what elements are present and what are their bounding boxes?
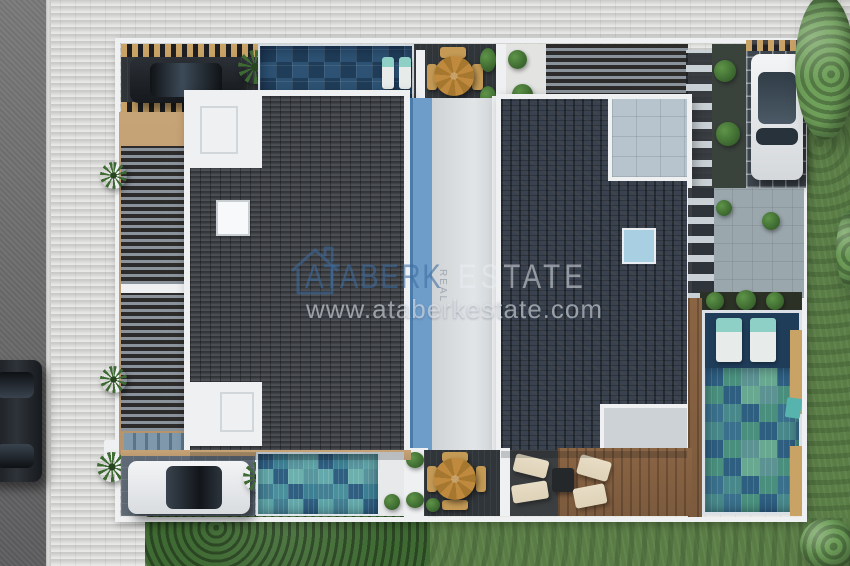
garden-shrub: [716, 200, 732, 216]
planter-shrub: [766, 292, 784, 310]
watermark-text-ataberk: ATABERK: [305, 260, 442, 294]
planter-shrub: [736, 290, 756, 310]
watermark-text-estate: ESTATE: [458, 260, 587, 294]
round-dining-table: [434, 56, 474, 96]
terrace-chair: [476, 466, 486, 492]
wall-pillar: [500, 448, 510, 516]
roof-shadow: [190, 452, 404, 460]
stepping-stone-column: [688, 188, 714, 300]
in-pool-lounger: [750, 318, 776, 362]
garden-shrub: [508, 50, 527, 69]
terrace-plant: [384, 494, 400, 510]
watermark-brand-secondary: ESTATE: [458, 260, 615, 294]
in-pool-lounger: [399, 57, 411, 89]
carport-trellis-beam: [121, 44, 259, 57]
pool-towel: [785, 397, 803, 419]
rooflight-frame: [220, 392, 254, 432]
skylight-left-roof: [216, 200, 250, 236]
deck-coffee-table: [552, 468, 574, 492]
garden-shrub: [762, 212, 780, 230]
round-dining-table: [434, 458, 476, 500]
terrace-divider: [121, 284, 189, 293]
palm-tree: [100, 366, 127, 393]
aerial-render-canvas: ATABERK REAL ESTATE www.ataberkestate.co…: [0, 0, 850, 566]
watermark-website: www.ataberkestate.com: [306, 296, 603, 322]
pool-right-mosaic: [705, 368, 799, 512]
pool-wood-step: [790, 446, 802, 516]
hedge-bottom-left: [145, 515, 430, 566]
skylight-right-roof: [622, 228, 656, 264]
parked-suv-rear: [128, 461, 250, 514]
planter-shrub: [406, 492, 424, 508]
roof-shadow: [501, 451, 687, 458]
in-pool-lounger: [716, 318, 742, 362]
right-roof-stone-terrace-bottom: [600, 404, 687, 451]
curb: [46, 0, 51, 566]
in-pool-lounger: [382, 57, 394, 89]
palm-tree: [100, 162, 127, 189]
right-roof-stone-terrace-top: [608, 99, 687, 181]
bush-bottom-right: [800, 518, 850, 566]
pergola-side-lower: [121, 293, 189, 431]
rooflight-frame: [200, 106, 238, 154]
garden-shrub: [714, 60, 736, 82]
terrace-plant: [480, 48, 496, 72]
planter-shrub: [706, 292, 724, 310]
garden-shrub: [716, 122, 740, 146]
parked-car-street: [0, 360, 42, 482]
tree-top-right: [795, 0, 850, 140]
pergola-side-upper: [121, 146, 189, 284]
terrace-plant: [426, 498, 440, 512]
terrace-chair: [442, 500, 468, 510]
pool-bottom-left: [256, 452, 380, 516]
